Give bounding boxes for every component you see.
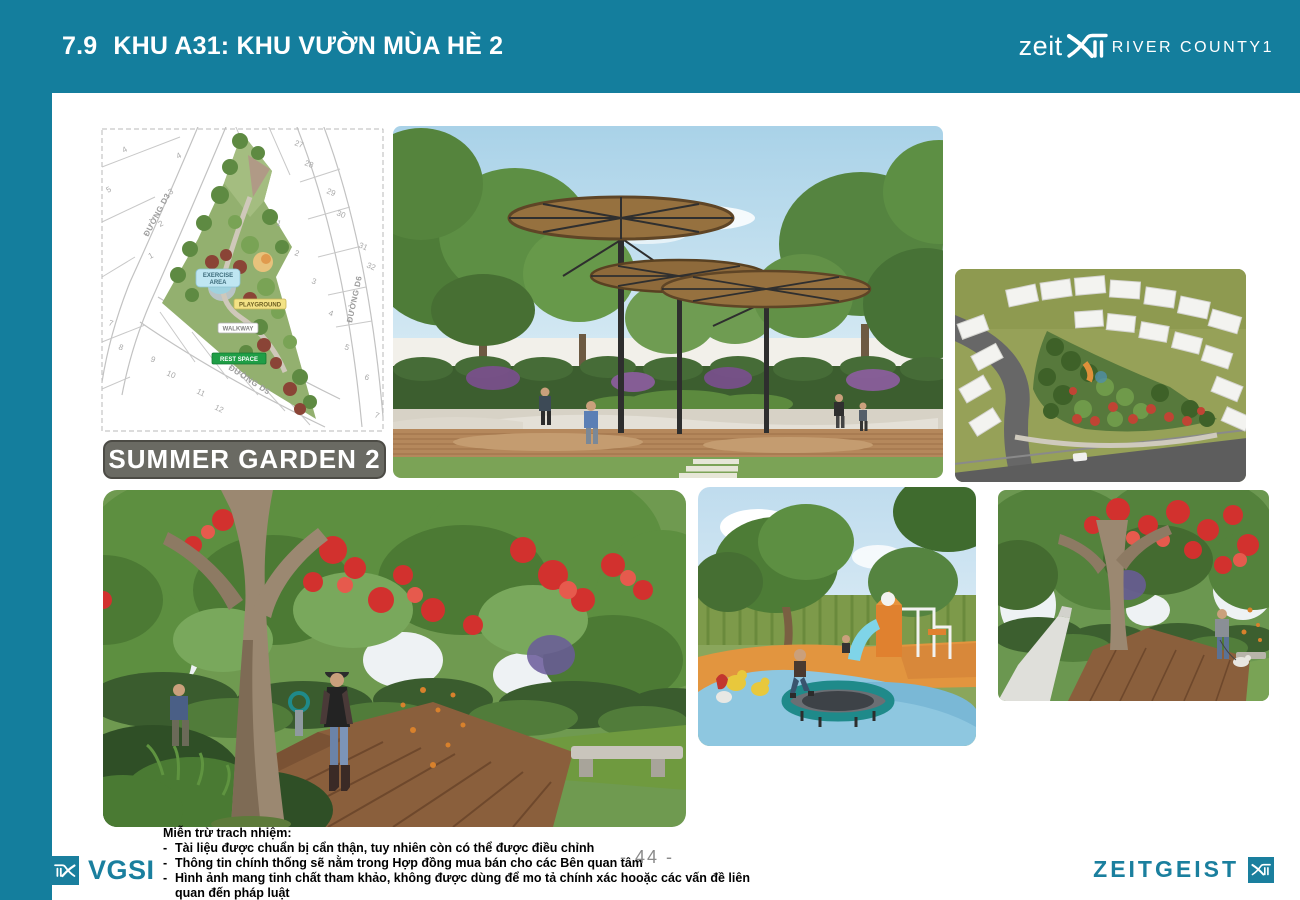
playground-render-image xyxy=(698,487,976,746)
section-number: 7.9 xyxy=(62,32,97,61)
section-title: KHU A31: KHU VƯỜN MÙA HÈ 2 xyxy=(113,32,503,61)
map-label-playground: PLAYGROUND xyxy=(239,303,282,309)
aerial-render-image xyxy=(955,269,1246,482)
zeit-x-icon xyxy=(1066,32,1108,64)
map-label-exercise: EXERCISE xyxy=(203,273,233,279)
boardwalk-render-image xyxy=(103,490,686,827)
vgsi-x-icon xyxy=(50,856,79,885)
pavilion-render-image xyxy=(393,126,943,478)
map-label-walkway: WALKWAY xyxy=(223,327,254,333)
disclaimer-title: Miễn trừ trach nhiệm: xyxy=(163,826,783,841)
flame-tree-path-render-image xyxy=(998,490,1269,701)
vgsi-wordmark: VGSI xyxy=(88,855,155,886)
slide-page: 7.9 KHU A31: KHU VƯỜN MÙA HÈ 2 zeit RIVE… xyxy=(0,0,1300,900)
zeit-wordmark: zeit xyxy=(1019,31,1063,62)
river-county-wordmark: RIVER COUNTY1 xyxy=(1112,39,1274,57)
page-title: 7.9 KHU A31: KHU VƯỜN MÙA HÈ 2 xyxy=(62,32,503,61)
badge-label: SUMMER GARDEN 2 xyxy=(108,444,380,475)
page-number: - 44 - xyxy=(597,847,697,868)
left-accent-bar xyxy=(0,93,52,900)
zeitgeist-logo: ZEITGEIST xyxy=(1093,856,1274,883)
map-label-exercise-area: AREA xyxy=(209,280,227,286)
zeitgeist-x-icon xyxy=(1248,857,1274,883)
header-band: 7.9 KHU A31: KHU VƯỜN MÙA HÈ 2 zeit RIVE… xyxy=(0,0,1300,93)
garden-name-badge: SUMMER GARDEN 2 xyxy=(103,440,386,479)
river-county-logo: zeit RIVER COUNTY1 xyxy=(1019,0,1274,93)
disclaimer-item: - Hình ảnh mang tinh chất tham khảo, khô… xyxy=(163,871,783,900)
site-plan-map-image: ĐƯỜNG D3 ĐƯỜNG D5 ĐƯỜNG D6 4 5 4 3 2 1 7… xyxy=(100,127,385,433)
zeitgeist-wordmark: ZEITGEIST xyxy=(1093,856,1239,883)
map-label-rest-space: REST SPACE xyxy=(220,357,258,363)
vgsi-logo: VGSI xyxy=(50,855,155,886)
